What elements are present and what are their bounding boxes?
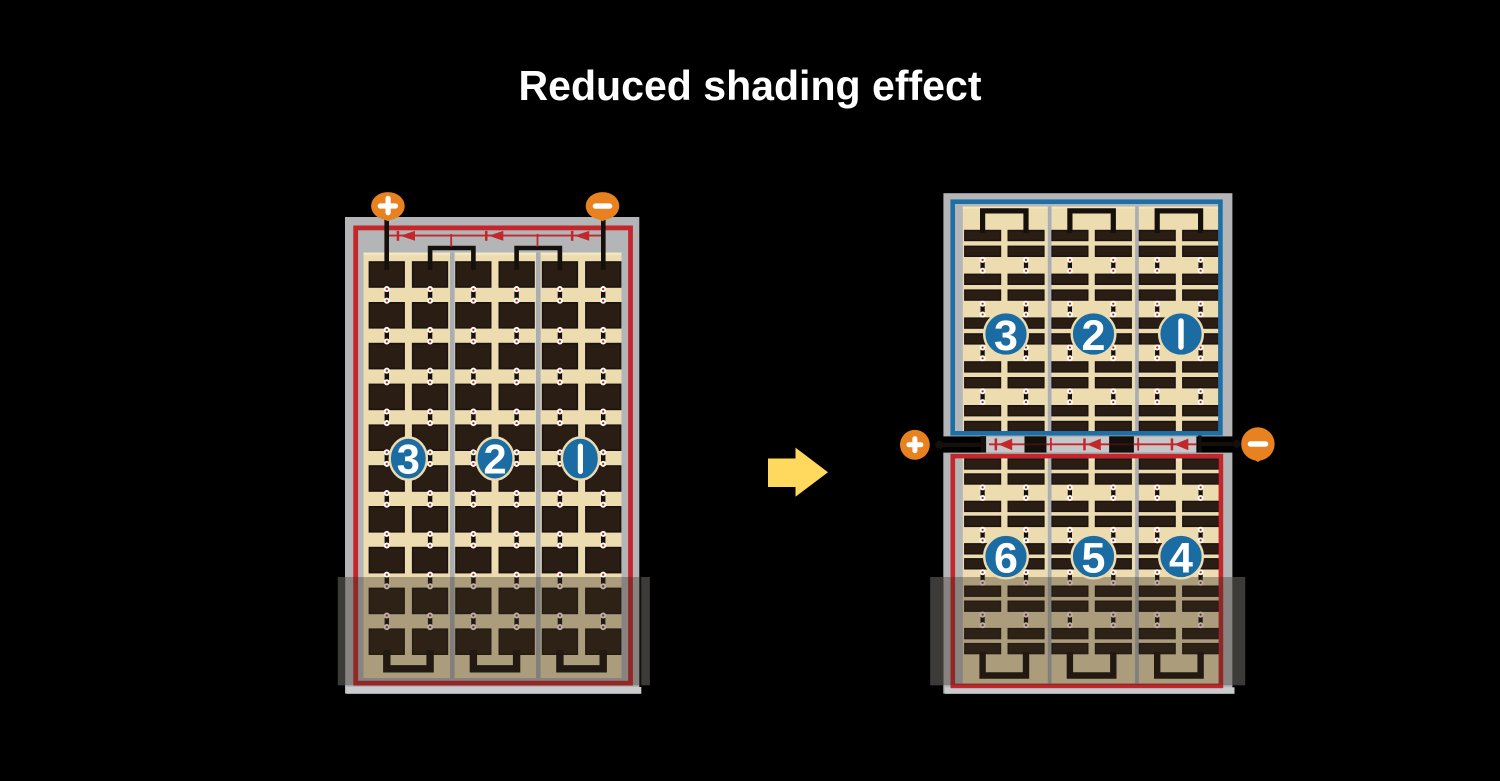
svg-text:6: 6 [994,534,1018,582]
svg-text:Reduced shading effect: Reduced shading effect [519,62,982,109]
svg-text:4: 4 [1169,534,1193,582]
svg-text:5: 5 [1082,534,1106,582]
svg-text:2: 2 [483,436,506,483]
svg-text:2: 2 [1082,312,1106,360]
svg-text:3: 3 [397,436,420,483]
svg-text:3: 3 [994,312,1018,360]
